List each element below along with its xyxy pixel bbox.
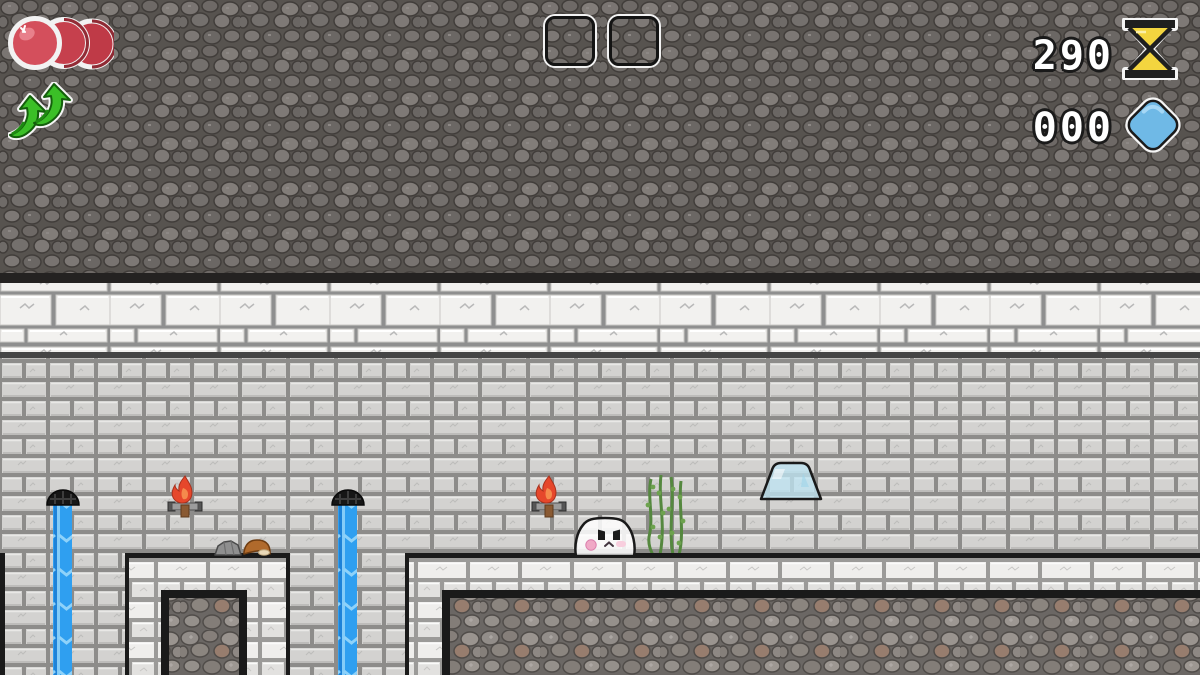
white-brick-band bbox=[0, 283, 1200, 352]
background-cobblestone bbox=[0, 0, 1200, 273]
ghost-character bbox=[575, 518, 634, 556]
waterfall-middle bbox=[338, 498, 357, 675]
waterfall-left bbox=[53, 498, 72, 675]
left-platform-structure bbox=[125, 553, 290, 675]
game-world bbox=[0, 0, 1200, 675]
screen-edge-platform bbox=[0, 553, 5, 675]
game-viewport[interactable]: 290 000 bbox=[0, 0, 1200, 675]
band-shadow-line bbox=[0, 352, 1200, 358]
ceiling-shadow-line bbox=[0, 273, 1200, 283]
main-platform bbox=[405, 553, 1200, 675]
